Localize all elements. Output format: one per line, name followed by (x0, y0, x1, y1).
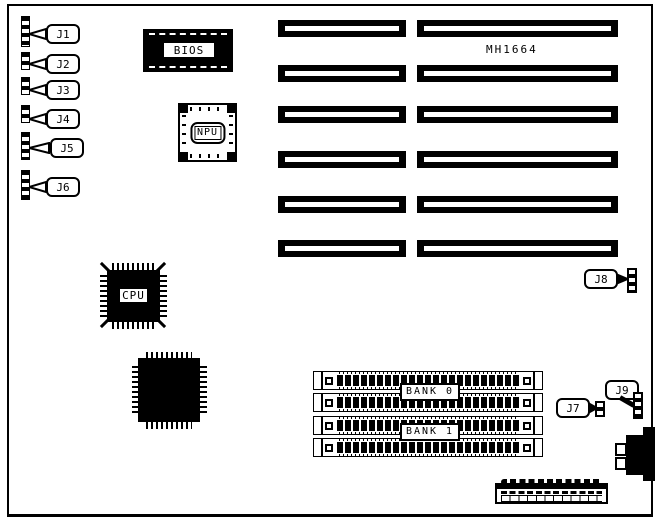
npu-chip: NPU (178, 103, 237, 162)
simm-latch-right (523, 377, 531, 385)
isa-slot-right-5 (417, 196, 618, 213)
npu-corner (227, 152, 235, 160)
isa-slot-right-4 (417, 151, 618, 168)
simm-chip-strip (337, 442, 519, 453)
callout-j2: J2 (46, 54, 80, 74)
isa-slot-left-3 (278, 106, 406, 123)
simm-latch-left (325, 399, 333, 407)
bank0-label: BANK 0 (400, 383, 460, 401)
cpu-chip: CPU (107, 270, 160, 322)
isa-slot-left-6 (278, 240, 406, 257)
npu-corner (227, 105, 235, 113)
simm-latch-right (523, 444, 531, 452)
isa-slot-left-4 (278, 151, 406, 168)
motherboard-diagram: J1 J2 J3 J4 J5 J6 BIOS NPU CPU (0, 0, 660, 527)
simm-end-right (533, 394, 542, 411)
keyboard-connector-pin-tab (615, 443, 627, 456)
bios-label: BIOS (162, 41, 216, 59)
simm-end-left (314, 417, 323, 434)
power-connector-body (495, 483, 608, 504)
simm-latch-right (523, 399, 531, 407)
simm-end-right (533, 439, 542, 456)
simm-latch-left (325, 444, 333, 452)
power-connector (495, 479, 608, 504)
keyboard-connector-body (626, 435, 648, 475)
j6-callout-tail (29, 181, 47, 193)
npu-pins-top (190, 107, 225, 111)
isa-slot-left-1 (278, 20, 406, 37)
board-model-label: MH1664 (486, 44, 538, 55)
simm-latch-left (325, 422, 333, 430)
bios-dash-top (149, 33, 227, 35)
npu-pins-right (229, 115, 233, 150)
isa-slot-right-1 (417, 20, 618, 37)
callout-j4: J4 (46, 109, 80, 129)
simm-end-left (314, 439, 323, 456)
power-connector-contacts (501, 491, 602, 494)
power-connector-sockets (501, 495, 602, 502)
j9-pin-header (633, 392, 643, 419)
simm-latch-left (325, 377, 333, 385)
callout-j7: J7 (556, 398, 590, 418)
j2-callout-tail (29, 58, 47, 70)
callout-j3: J3 (46, 80, 80, 100)
simm-end-left (314, 394, 323, 411)
callout-j8: J8 (584, 269, 618, 289)
isa-slot-right-6 (417, 240, 618, 257)
simm-end-right (533, 372, 542, 389)
npu-label-frame: NPU (190, 122, 225, 144)
cpu-pins-bottom (112, 322, 155, 329)
keyboard-connector-pin-tab (615, 457, 627, 470)
cpu-pins-left (100, 275, 107, 317)
isa-slot-right-3 (417, 106, 618, 123)
j7-pin-header (595, 401, 605, 417)
bios-chip: BIOS (143, 29, 233, 72)
bios-dash-bottom (149, 66, 227, 68)
npu-corner (180, 152, 188, 160)
power-connector-band (497, 485, 606, 489)
callout-j5: J5 (50, 138, 84, 158)
npu-corner (180, 105, 188, 113)
simm-latch-right (523, 422, 531, 430)
simm-end-left (314, 372, 323, 389)
chip-pins-right (200, 366, 207, 414)
callout-j6: J6 (46, 177, 80, 197)
isa-slot-right-2 (417, 65, 618, 82)
j3-callout-tail (29, 84, 47, 96)
npu-pins-bottom (190, 154, 225, 158)
npu-pins-left (182, 115, 186, 150)
chip-pins-bottom (146, 422, 192, 429)
j5-callout-tail (29, 142, 50, 154)
cpu-label: CPU (118, 287, 149, 304)
cpu-pins-top (112, 263, 155, 270)
cpu-pins-right (160, 275, 167, 317)
unlabeled-chip (138, 358, 200, 422)
bank1-label: BANK 1 (400, 423, 460, 441)
simm-end-right (533, 417, 542, 434)
callout-j1: J1 (46, 24, 80, 44)
j4-callout-tail (29, 113, 47, 125)
npu-label: NPU (194, 126, 221, 140)
isa-slot-left-5 (278, 196, 406, 213)
j1-callout-tail (29, 28, 47, 40)
j8-pin-header (627, 268, 637, 293)
isa-slot-left-2 (278, 65, 406, 82)
